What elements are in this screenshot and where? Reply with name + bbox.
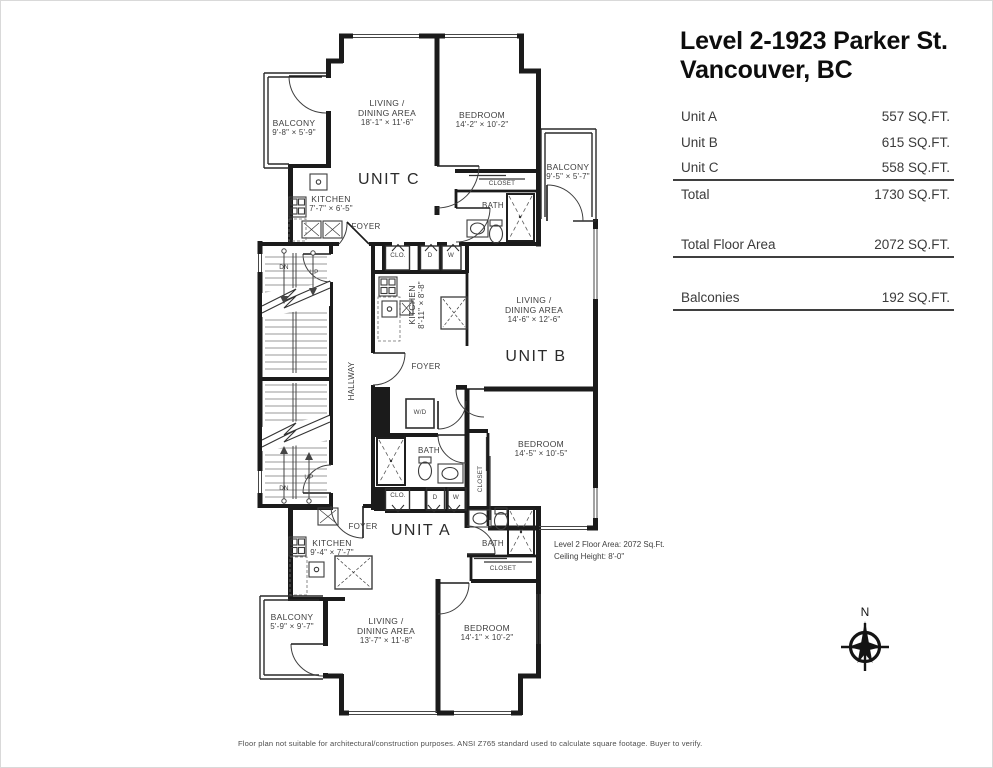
row-label: Balconies <box>681 290 740 305</box>
north-compass-icon <box>841 621 889 671</box>
label-up-upper: UP <box>309 268 318 278</box>
label-living-dining-c: LIVING / DINING AREA 18'-1" × 11'-6" <box>358 98 416 128</box>
label-kitchen-a: KITCHEN 9'-4" × 7'-7" <box>310 538 354 558</box>
label-bath-a: BATH <box>482 539 504 549</box>
table-row-total-floor-area: Total Floor Area 2072 SQ.FT. <box>673 232 954 258</box>
title-line-2: Vancouver, BC <box>680 56 948 85</box>
page-title: Level 2-1923 Parker St. Vancouver, BC <box>680 27 948 85</box>
table-row-total: Total 1730 SQ.FT. <box>673 181 954 207</box>
label-unit-a: UNIT A <box>391 526 451 536</box>
label-closet-b: CLOSET <box>476 466 486 492</box>
label-washer-c: W <box>448 251 454 261</box>
area-table: Unit A 557 SQ.FT. Unit B 615 SQ.FT. Unit… <box>673 103 954 311</box>
floor-area-note: Level 2 Floor Area: 2072 Sq.Ft. Ceiling … <box>554 539 665 563</box>
table-row-unit-a: Unit A 557 SQ.FT. <box>673 103 954 129</box>
label-closet-a: CLOSET <box>490 564 516 574</box>
row-value: 615 SQ.FT. <box>882 135 950 150</box>
label-bath-c: BATH <box>482 201 504 211</box>
label-clo-a: CLO. <box>390 491 406 501</box>
title-line-1: Level 2-1923 Parker St. <box>680 27 948 56</box>
label-dryer-a: D <box>433 493 438 503</box>
label-washer-a: W <box>453 493 459 503</box>
label-closet-c: CLOSET <box>489 179 515 189</box>
label-living-dining-b: LIVING / DINING AREA 14'-6" × 12'-6" <box>505 295 563 325</box>
label-unit-b: UNIT B <box>505 352 566 362</box>
label-balcony-b: BALCONY 9'-5" × 5'-7" <box>546 162 590 182</box>
label-foyer-c: FOYER <box>351 222 380 232</box>
label-dn-lower: DN <box>279 484 289 494</box>
row-label: Total Floor Area <box>681 237 776 252</box>
label-dn-upper: DN <box>279 263 289 273</box>
row-value: 558 SQ.FT. <box>882 160 950 175</box>
note-line-2: Ceiling Height: 8'-0" <box>554 551 665 563</box>
row-label: Unit A <box>681 109 717 124</box>
label-foyer-b: FOYER <box>411 362 440 372</box>
label-kitchen-c: KITCHEN 7'-7" × 6'-5" <box>309 194 353 214</box>
row-label: Unit C <box>681 160 719 175</box>
table-row-unit-c: Unit C 558 SQ.FT. <box>673 155 954 181</box>
row-label: Total <box>681 187 710 202</box>
table-row-unit-b: Unit B 615 SQ.FT. <box>673 129 954 155</box>
label-foyer-a: FOYER <box>348 522 377 532</box>
label-bedroom-b: BEDROOM 14'-5" × 10'-5" <box>515 439 568 459</box>
label-bedroom-c: BEDROOM 14'-2" × 10'-2" <box>456 110 509 130</box>
row-value: 1730 SQ.FT. <box>874 187 950 202</box>
row-value: 2072 SQ.FT. <box>874 237 950 252</box>
row-value: 557 SQ.FT. <box>882 109 950 124</box>
label-clo-c: CLO. <box>390 251 406 261</box>
table-spacer <box>673 258 954 285</box>
disclaimer-text: Floor plan not suitable for architectura… <box>238 739 702 748</box>
label-up-lower: UP <box>304 473 313 483</box>
label-balcony-c: BALCONY 9'-8" × 5'-9" <box>272 118 316 138</box>
label-bedroom-a: BEDROOM 14'-1" × 10'-2" <box>461 623 514 643</box>
row-value: 192 SQ.FT. <box>882 290 950 305</box>
label-balcony-a: BALCONY 5'-9" × 9'-7" <box>270 612 314 632</box>
row-label: Unit B <box>681 135 718 150</box>
label-bath-middle: BATH <box>418 446 440 456</box>
label-dryer-c: D <box>428 251 433 261</box>
label-living-dining-a: LIVING / DINING AREA 13'-7" × 11'-8" <box>357 616 415 646</box>
floor-plan-page: BALCONY 9'-8" × 5'-9" LIVING / DINING AR… <box>0 0 993 768</box>
label-kitchen-b: KITCHEN 8'-11" × 8'-8" <box>407 281 427 329</box>
stairs <box>262 249 330 503</box>
table-row-balconies: Balconies 192 SQ.FT. <box>673 285 954 311</box>
label-unit-c: UNIT C <box>358 175 420 185</box>
label-hallway: HALLWAY <box>347 362 357 401</box>
table-spacer <box>673 207 954 232</box>
note-line-1: Level 2 Floor Area: 2072 Sq.Ft. <box>554 539 665 551</box>
compass-north-label: N <box>861 605 870 619</box>
label-washer-dryer-b: W/D <box>414 408 427 418</box>
